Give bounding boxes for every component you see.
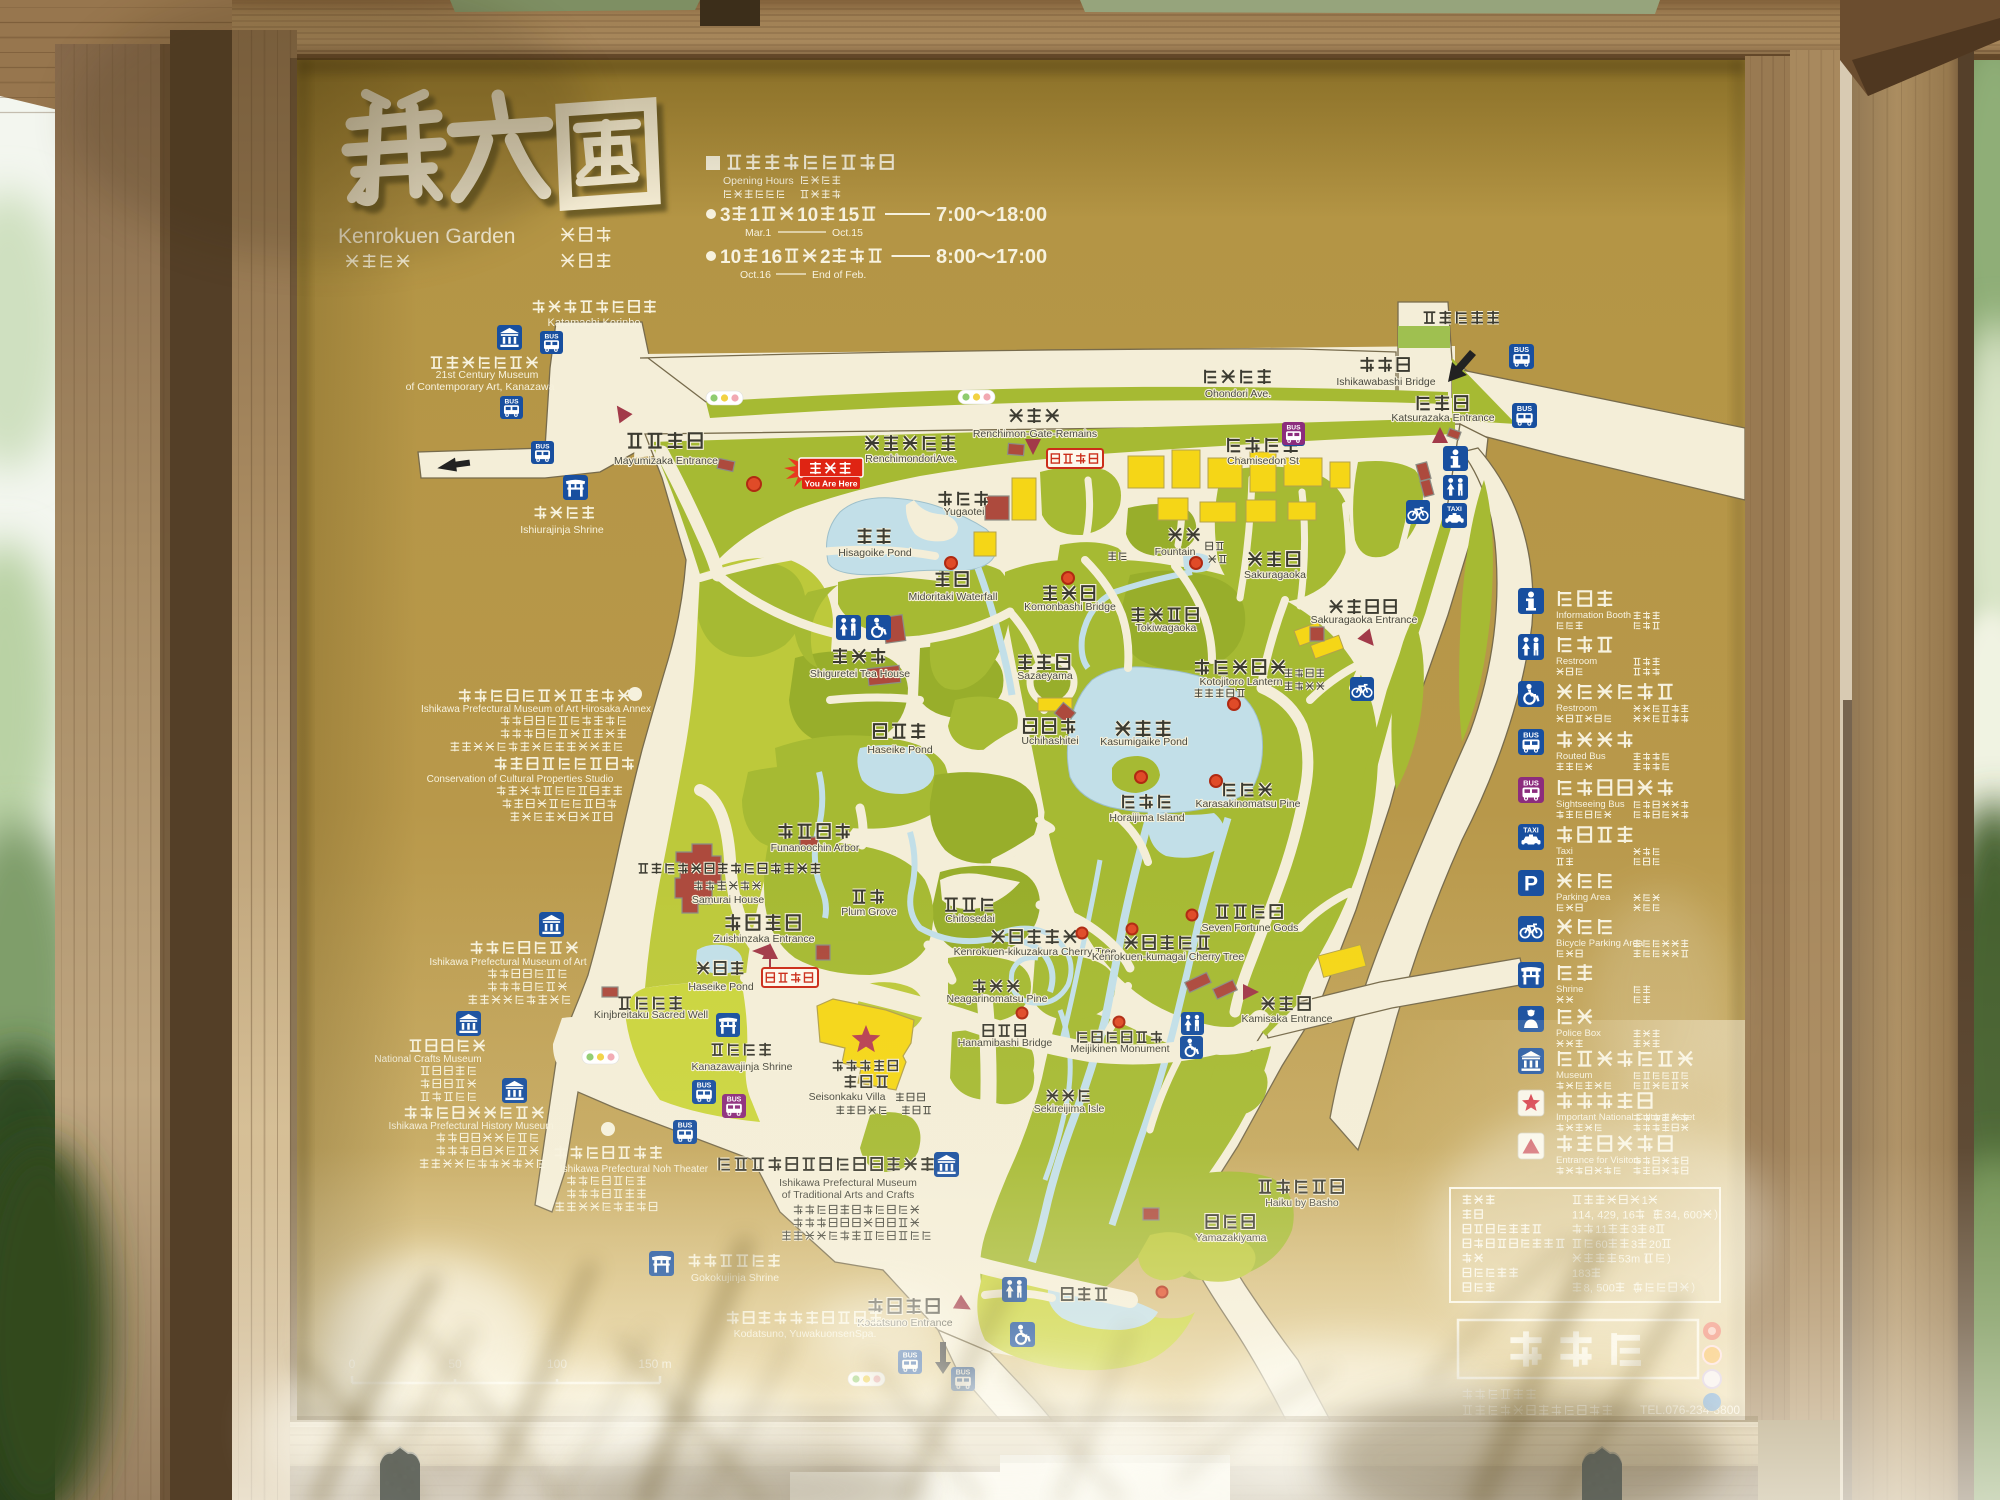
- svg-text:You Are Here: You Are Here: [805, 479, 858, 489]
- svg-text:Ohondori Ave.: Ohondori Ave.: [1205, 388, 1271, 400]
- svg-text:Uchihashitei: Uchihashitei: [1021, 735, 1078, 747]
- svg-text:Restroom: Restroom: [1556, 656, 1597, 667]
- svg-text:Mayumizaka Entrance: Mayumizaka Entrance: [614, 455, 718, 467]
- svg-text:Katamachi,Korinbo: Katamachi,Korinbo: [548, 317, 641, 329]
- svg-text:End of Feb.: End of Feb.: [812, 269, 866, 281]
- svg-text:Mar.1: Mar.1: [745, 227, 771, 239]
- svg-text:Renchimon-Gate-Remains: Renchimon-Gate-Remains: [973, 428, 1097, 440]
- svg-text:TAXI: TAXI: [1523, 827, 1538, 834]
- svg-text:Horaijima Island: Horaijima Island: [1109, 812, 1184, 824]
- svg-text:Conservation of Cultural Prope: Conservation of Cultural Properties Stud…: [427, 774, 614, 785]
- svg-text:Tokiwagaoka: Tokiwagaoka: [1136, 622, 1197, 634]
- svg-text:Oct.16: Oct.16: [740, 269, 771, 281]
- svg-text:BUS: BUS: [1517, 404, 1532, 413]
- svg-text:Taxi: Taxi: [1556, 846, 1573, 857]
- svg-text:BUS: BUS: [1523, 778, 1539, 787]
- svg-text:Sightseeing Bus: Sightseeing Bus: [1556, 799, 1625, 810]
- svg-text:BUS: BUS: [1287, 424, 1302, 431]
- svg-text:of Contemporary Art, Kanazawa: of Contemporary Art, Kanazawa: [406, 381, 555, 393]
- svg-text:BUS: BUS: [1514, 345, 1529, 354]
- svg-text:BUS: BUS: [536, 443, 551, 450]
- svg-text:Kotojitoro Lantern: Kotojitoro Lantern: [1200, 676, 1283, 688]
- svg-text:Hisagoike Pond: Hisagoike Pond: [838, 547, 912, 559]
- svg-text:Karasakinomatsu Pine: Karasakinomatsu Pine: [1195, 798, 1300, 810]
- svg-text:16: 16: [761, 247, 782, 268]
- svg-text:8:00～17:00: 8:00～17:00: [936, 246, 1047, 268]
- svg-text:Haseike Pond: Haseike Pond: [867, 744, 933, 756]
- svg-text:BUS: BUS: [505, 398, 520, 405]
- svg-text:BUS: BUS: [1523, 730, 1539, 739]
- svg-text:Information Booth: Information Booth: [1556, 610, 1631, 621]
- svg-text:Restroom: Restroom: [1556, 703, 1597, 714]
- svg-text:2: 2: [820, 247, 831, 268]
- svg-text:RenchimondoriAve.: RenchimondoriAve.: [865, 453, 956, 465]
- svg-text:Oct.15: Oct.15: [832, 227, 863, 239]
- svg-text:Chamisedon St: Chamisedon St: [1227, 455, 1299, 467]
- svg-text:Funanoochin Arbor: Funanoochin Arbor: [771, 842, 860, 854]
- svg-text:Midoritaki Waterfall: Midoritaki Waterfall: [909, 591, 998, 603]
- svg-text:Ishikawa Prefectural Museum of: Ishikawa Prefectural Museum of Art Hiros…: [421, 704, 651, 715]
- svg-text:Sazaeyama: Sazaeyama: [1017, 670, 1073, 682]
- svg-text:Ishikawabashi Bridge: Ishikawabashi Bridge: [1336, 376, 1435, 388]
- svg-text:BUS: BUS: [545, 333, 560, 340]
- svg-text:Sakuragaoka Entrance: Sakuragaoka Entrance: [1311, 614, 1418, 626]
- svg-text:Routed Bus: Routed Bus: [1556, 751, 1606, 762]
- svg-text:Katsurazaka Entrance: Katsurazaka Entrance: [1391, 412, 1494, 424]
- svg-text:Ishiurajinja Shrine: Ishiurajinja Shrine: [520, 524, 604, 536]
- svg-text:Fountain: Fountain: [1155, 546, 1196, 558]
- svg-text:21st Century Museum: 21st Century Museum: [436, 369, 539, 381]
- svg-text:TAXI: TAXI: [1447, 506, 1462, 513]
- svg-text:Komonbashi Bridge: Komonbashi Bridge: [1024, 601, 1116, 613]
- svg-text:10: 10: [720, 247, 741, 268]
- svg-text:Sakuragaoka: Sakuragaoka: [1244, 569, 1306, 581]
- svg-text:Yugaotei: Yugaotei: [944, 506, 985, 518]
- svg-text:Kasumigaike Pond: Kasumigaike Pond: [1100, 736, 1188, 748]
- svg-text:Shiguretei Tea House: Shiguretei Tea House: [810, 668, 910, 680]
